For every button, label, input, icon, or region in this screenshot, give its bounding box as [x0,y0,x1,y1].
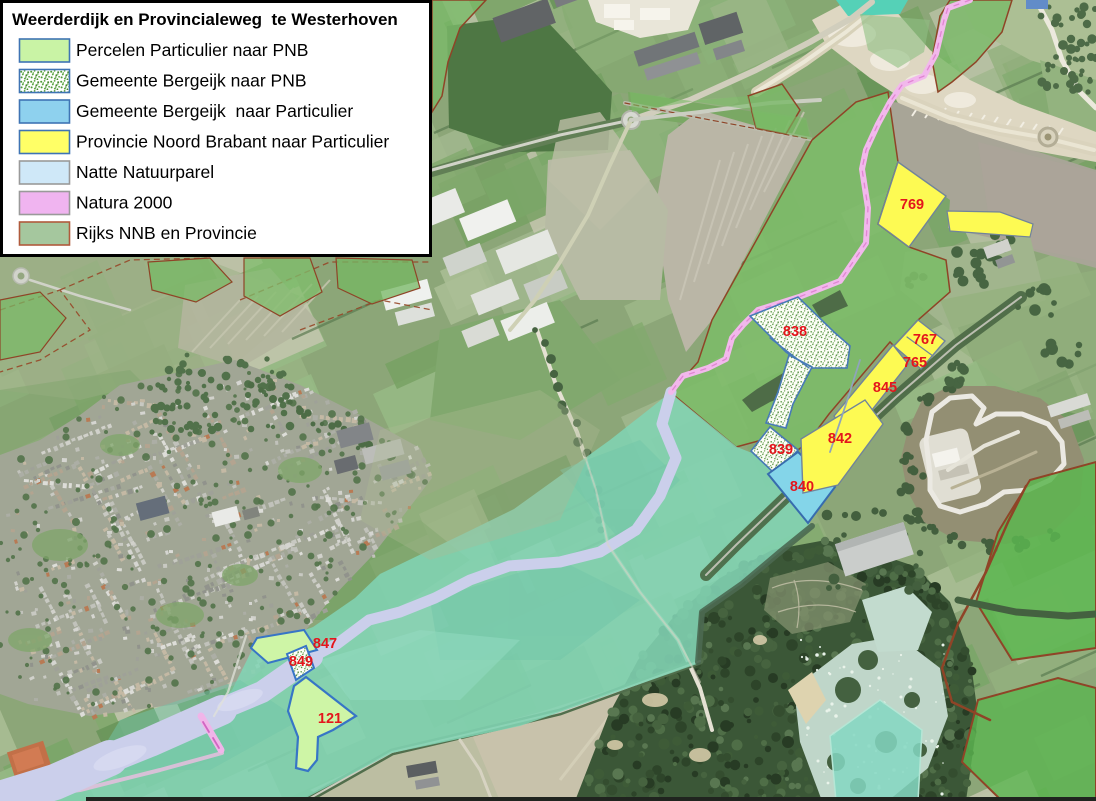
svg-text:Natte Natuurparel: Natte Natuurparel [76,162,214,182]
svg-text:Gemeente Bergeijk naar PNB: Gemeente Bergeijk naar PNB [76,71,307,91]
svg-text:Percelen Particulier naar PNB: Percelen Particulier naar PNB [76,40,308,60]
svg-text:Provincie Noord Brabant naar P: Provincie Noord Brabant naar Particulier [76,132,389,152]
svg-text:Rijks NNB en Provincie: Rijks NNB en Provincie [76,223,257,243]
svg-text:Weerderdijk en Provincialeweg: Weerderdijk en Provincialeweg te Westerh… [12,10,398,29]
svg-text:Gemeente Bergeijk naar Partic: Gemeente Bergeijk naar Particulier [76,101,353,121]
svg-text:Natura 2000: Natura 2000 [76,193,173,213]
